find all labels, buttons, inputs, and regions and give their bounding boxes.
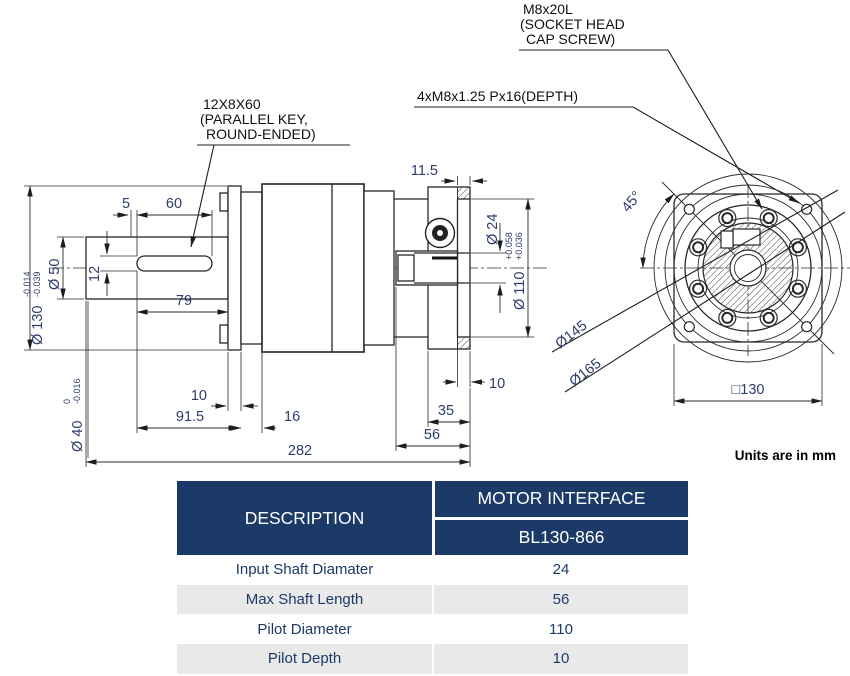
spec-table-header: DESCRIPTION MOTOR INTERFACE BL130-866 <box>177 481 688 555</box>
dim-dia50: Ø 50 <box>47 259 63 290</box>
table-header-description: DESCRIPTION <box>177 481 432 555</box>
dim-56: 56 <box>424 427 440 443</box>
dim-12: 12 <box>87 266 103 282</box>
dim-dia130-tol-lower: -0.039 <box>32 271 42 297</box>
row-value: 24 <box>432 555 688 585</box>
dim-45deg: 45° <box>619 188 645 215</box>
dim-282: 282 <box>288 443 312 459</box>
dim-dia110: Ø 110 <box>512 272 528 310</box>
dim-dia130: Ø 130 <box>30 306 46 346</box>
dim-dia40-tol-lower: -0.016 <box>72 378 82 404</box>
keyway-slot <box>137 256 212 271</box>
dim-dia40-tol-upper: 0 <box>62 399 72 404</box>
units-note: Units are in mm <box>735 448 836 463</box>
table-header-model: BL130-866 <box>435 520 688 556</box>
dim-dia40: Ø 40 <box>70 421 86 452</box>
spec-table: DESCRIPTION MOTOR INTERFACE BL130-866 In… <box>177 481 688 674</box>
dim-16: 16 <box>284 409 300 425</box>
screw-note-line2: (SOCKET HEAD <box>520 16 625 32</box>
table-row: Pilot Diameter 110 <box>177 614 688 644</box>
section-hatch <box>458 337 471 349</box>
table-header-motor-interface: MOTOR INTERFACE <box>435 481 688 520</box>
row-value: 10 <box>432 644 688 674</box>
dim-79: 79 <box>176 293 192 309</box>
table-row: Pilot Depth 10 <box>177 644 688 674</box>
dim-11-5: 11.5 <box>411 163 438 179</box>
row-value: 110 <box>432 614 688 644</box>
key-note-line2: (PARALLEL KEY, <box>200 111 308 127</box>
output-flange <box>228 186 241 350</box>
dim-dia165: Ø165 <box>567 356 605 390</box>
dim-35: 35 <box>438 403 454 419</box>
dim-dia24: Ø 24 <box>485 214 501 245</box>
screw-note-line3: CAP SCREW) <box>526 31 615 47</box>
row-label: Pilot Depth <box>177 644 432 674</box>
dim-10-pilot: 10 <box>489 376 505 392</box>
dim-dia110-tol-upper: +0.058 <box>504 232 514 260</box>
front-view: 45° Ø145 Ø165 □130 <box>552 174 850 406</box>
tap-note: 4xM8x1.25 Px16(DEPTH) <box>417 88 578 104</box>
dim-dia110-tol-lower: +0.036 <box>514 232 524 260</box>
input-bore <box>730 250 766 286</box>
table-row: Input Shaft Diamater 24 <box>177 555 688 585</box>
dim-dia130-tol-upper: -0.014 <box>22 271 32 297</box>
dim-60: 60 <box>166 196 182 212</box>
row-value: 56 <box>432 585 688 615</box>
gearbox-drawing-page: 5 60 12 Ø 50 Ø 130 -0.014 -0.039 Ø 40 0 <box>0 0 850 676</box>
row-label: Pilot Diameter <box>177 614 432 644</box>
section-hatch <box>458 187 471 199</box>
dim-sq130: □130 <box>732 382 765 398</box>
dim-5: 5 <box>122 196 130 212</box>
row-label: Input Shaft Diamater <box>177 555 432 585</box>
dim-10-flange: 10 <box>191 388 207 404</box>
dim-dia145: Ø145 <box>553 318 591 352</box>
key-note-line3: ROUND-ENDED) <box>206 126 316 142</box>
table-row: Max Shaft Length 56 <box>177 585 688 615</box>
key-note-line1: 12X8X60 <box>203 96 261 112</box>
row-label: Max Shaft Length <box>177 585 432 615</box>
dim-91-5: 91.5 <box>176 409 204 425</box>
gear-housing <box>262 184 364 352</box>
screw-note-line1: M8x20L <box>523 1 573 17</box>
